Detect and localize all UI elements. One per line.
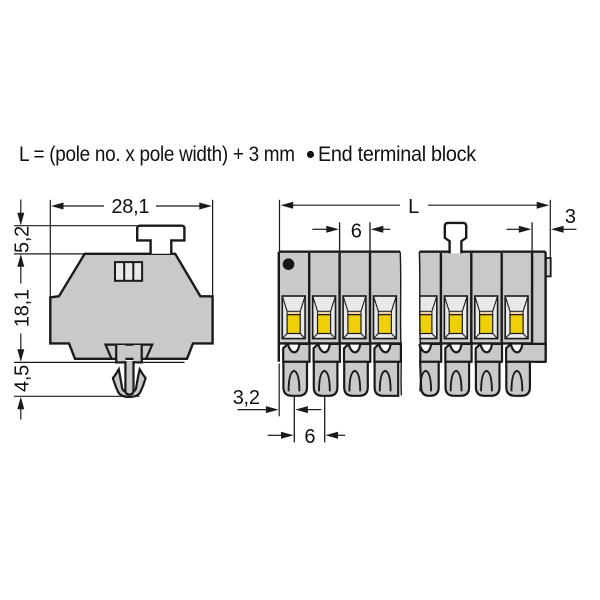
svg-text:L: L xyxy=(408,196,419,218)
svg-text:3: 3 xyxy=(565,206,576,228)
svg-text:18,1: 18,1 xyxy=(11,289,33,327)
svg-text:5,2: 5,2 xyxy=(11,226,33,253)
svg-text:4,5: 4,5 xyxy=(11,365,33,392)
svg-text:L = (pole no. x pole width) +: L = (pole no. x pole width) + 3 mm xyxy=(19,143,295,166)
svg-text:3,2: 3,2 xyxy=(233,387,260,409)
svg-text:6: 6 xyxy=(351,220,362,242)
svg-text:6: 6 xyxy=(304,426,315,448)
svg-text:28,1: 28,1 xyxy=(111,196,149,218)
svg-text:End terminal block: End terminal block xyxy=(318,144,477,167)
